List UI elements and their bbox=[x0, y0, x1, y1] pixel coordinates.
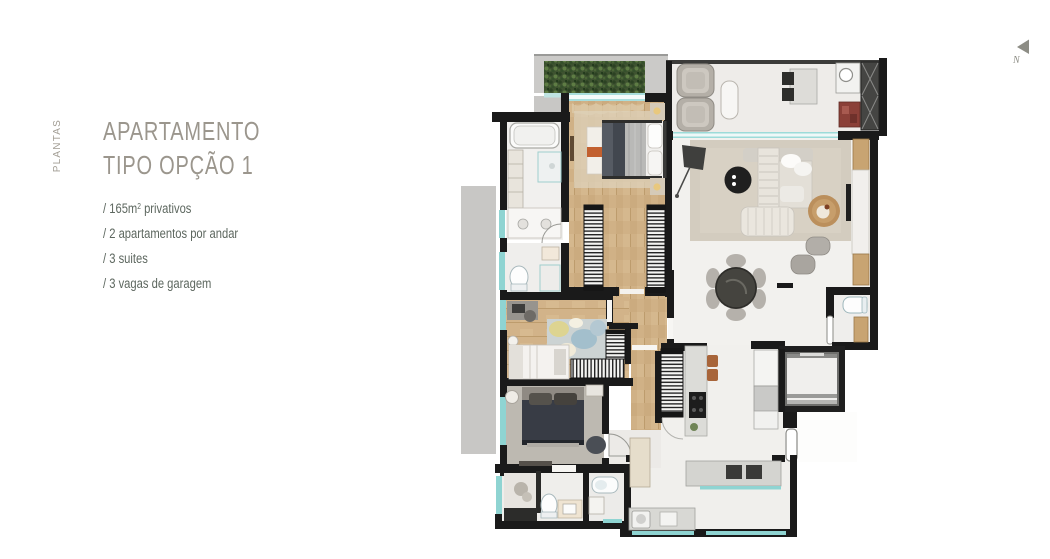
svg-text:N: N bbox=[1012, 55, 1021, 66]
